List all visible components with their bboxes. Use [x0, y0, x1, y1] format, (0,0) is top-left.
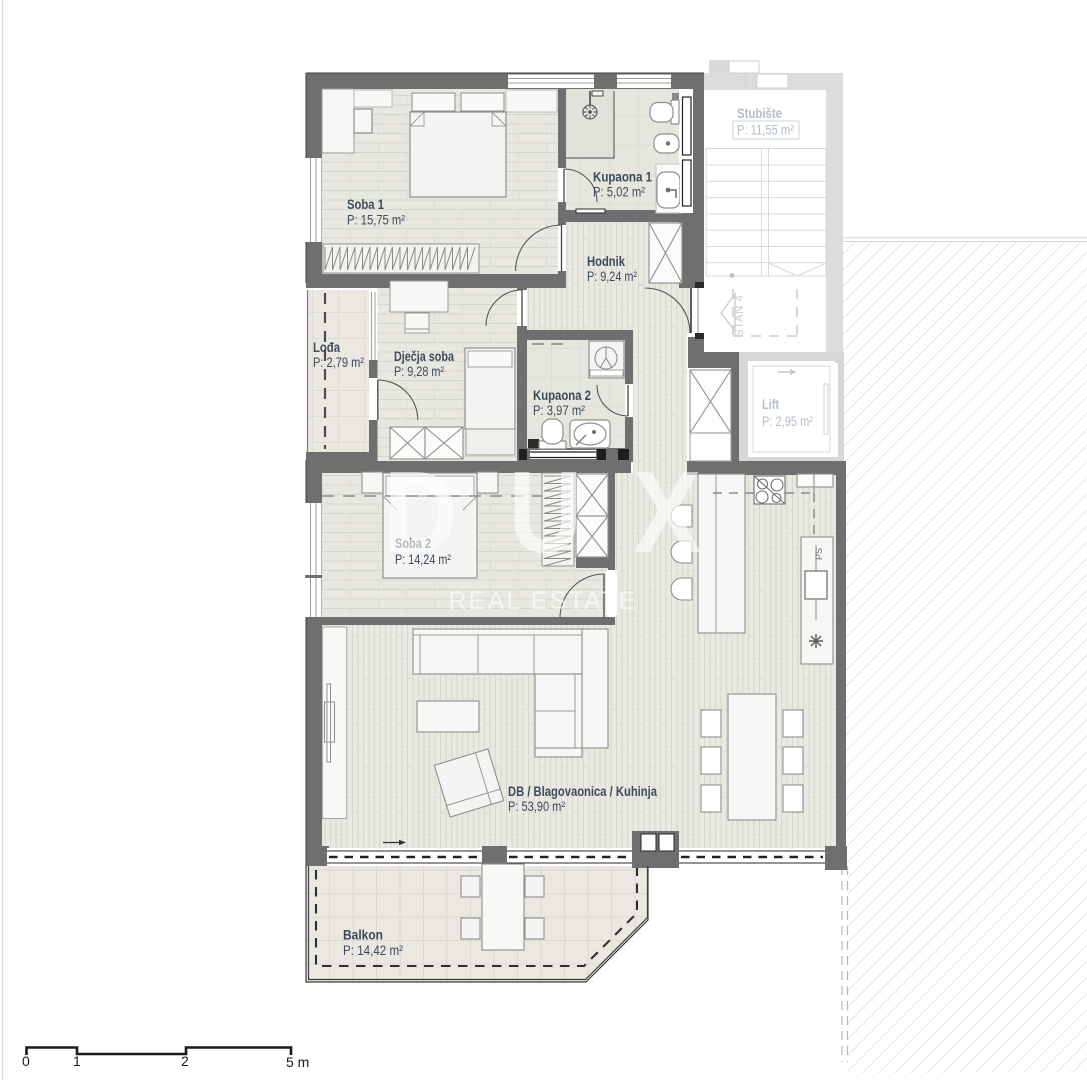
svg-text:Stubište: Stubište [737, 106, 782, 121]
svg-text:Lift: Lift [762, 397, 779, 412]
svg-text:P: 2,79 m²: P: 2,79 m² [313, 355, 364, 370]
svg-text:P: 14,42 m²: P: 14,42 m² [343, 943, 403, 958]
svg-text:DUX: DUX [384, 448, 753, 578]
svg-text:Balkon: Balkon [343, 928, 383, 943]
svg-text:1: 1 [73, 1053, 81, 1069]
svg-text:P: 9,24 m²: P: 9,24 m² [587, 269, 637, 284]
svg-text:2: 2 [181, 1053, 189, 1069]
svg-text:0: 0 [22, 1053, 30, 1069]
svg-text:P: 2,95 m²: P: 2,95 m² [762, 414, 813, 429]
svg-text:P: 9,28 m²: P: 9,28 m² [394, 364, 444, 379]
svg-text:PS: PS [814, 548, 824, 560]
svg-text:P: 53,90 m²: P: 53,90 m² [508, 799, 565, 814]
svg-text:Hodnik: Hodnik [587, 254, 625, 269]
svg-text:DB / Blagovaonica / Kuhinja: DB / Blagovaonica / Kuhinja [508, 784, 657, 799]
svg-text:5 m: 5 m [286, 1054, 309, 1070]
svg-text:P: 15,75 m²: P: 15,75 m² [347, 213, 405, 228]
svg-text:Dječja soba: Dječja soba [394, 349, 454, 364]
svg-text:Kupaona 1: Kupaona 1 [593, 170, 652, 185]
svg-text:Lođa: Lođa [313, 340, 340, 355]
svg-text:P: 5,02 m²: P: 5,02 m² [593, 185, 645, 200]
svg-text:P: 11,55 m²: P: 11,55 m² [737, 123, 794, 138]
svg-text:REAL ESTATE: REAL ESTATE [448, 587, 637, 615]
svg-text:Soba 1: Soba 1 [347, 197, 384, 212]
svg-text:STAN 4: STAN 4 [734, 294, 746, 337]
svg-text:Kupaona 2: Kupaona 2 [533, 388, 591, 403]
svg-text:P: 3,97 m²: P: 3,97 m² [533, 403, 585, 418]
